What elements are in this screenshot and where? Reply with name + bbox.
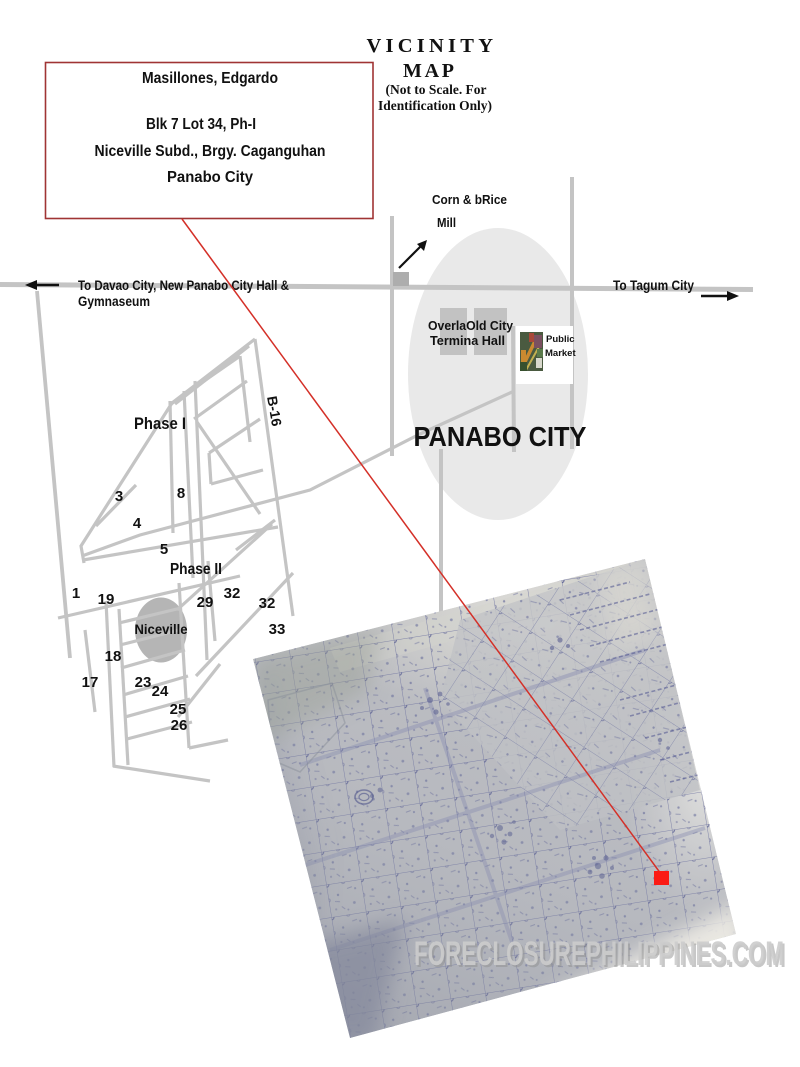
svg-text:24: 24 xyxy=(152,683,169,700)
svg-text:Public: Public xyxy=(546,334,575,345)
svg-text:Gymnaseum: Gymnaseum xyxy=(78,294,150,309)
svg-text:Phase I: Phase I xyxy=(134,414,186,433)
svg-text:8: 8 xyxy=(177,485,185,502)
svg-text:19: 19 xyxy=(98,591,115,608)
svg-text:PANABO CITY: PANABO CITY xyxy=(414,421,587,452)
svg-text:To Tagum City: To Tagum City xyxy=(613,278,694,293)
svg-text:17: 17 xyxy=(82,674,99,691)
svg-text:25: 25 xyxy=(170,701,187,718)
svg-text:32: 32 xyxy=(259,595,276,612)
svg-text:23: 23 xyxy=(135,674,152,691)
svg-text:Masillones, Edgardo: Masillones, Edgardo xyxy=(142,70,278,87)
svg-text:Market: Market xyxy=(545,348,576,359)
svg-text:5: 5 xyxy=(160,541,168,558)
svg-text:4: 4 xyxy=(133,515,142,532)
svg-text:Identification Only): Identification Only) xyxy=(378,98,492,113)
svg-text:18: 18 xyxy=(105,648,122,665)
svg-text:(Not to Scale. For: (Not to Scale. For xyxy=(386,82,487,97)
svg-text:Niceville Subd., Brgy. Cagang: Niceville Subd., Brgy. Caganguhan xyxy=(95,143,326,160)
svg-text:VICINITY: VICINITY xyxy=(367,35,498,57)
svg-text:Panabo City: Panabo City xyxy=(167,169,253,186)
svg-text:Niceville: Niceville xyxy=(135,621,188,637)
svg-text:Corn & bRice: Corn & bRice xyxy=(432,192,507,207)
svg-text:Blk 7 Lot 34, Ph-I: Blk 7 Lot 34, Ph-I xyxy=(146,116,256,133)
svg-text:29: 29 xyxy=(197,594,214,611)
svg-text:FORECLOSUREPHILIPPINES.COM: FORECLOSUREPHILIPPINES.COM xyxy=(414,935,784,973)
svg-text:OverlaOld City: OverlaOld City xyxy=(428,318,514,333)
svg-text:26: 26 xyxy=(171,717,188,734)
svg-text:32: 32 xyxy=(224,585,241,602)
svg-text:Mill: Mill xyxy=(437,215,456,230)
svg-text:1: 1 xyxy=(72,585,80,602)
svg-text:33: 33 xyxy=(269,621,286,638)
svg-text:Termina Hall: Termina Hall xyxy=(430,333,505,348)
svg-text:3: 3 xyxy=(115,488,123,505)
svg-text:Phase II: Phase II xyxy=(170,561,222,578)
svg-text:To Davao City, New Panabo City: To Davao City, New Panabo City Hall & xyxy=(78,278,289,293)
svg-text:MAP: MAP xyxy=(403,60,459,82)
